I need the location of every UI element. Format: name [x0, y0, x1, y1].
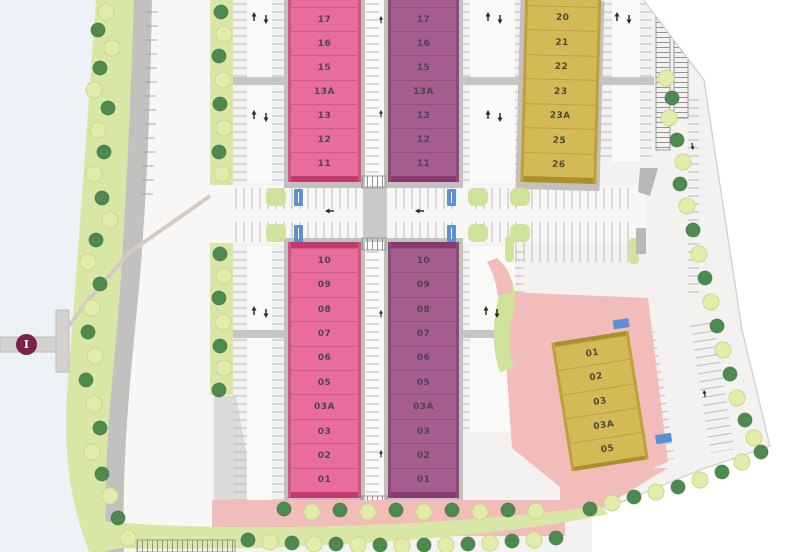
- unit-row[interactable]: 08: [291, 297, 358, 321]
- unit-row[interactable]: 13A: [391, 80, 456, 104]
- unit-row[interactable]: 18: [291, 0, 358, 7]
- unit-row[interactable]: 15: [391, 55, 456, 79]
- unit-row[interactable]: 09: [291, 272, 358, 296]
- unit-row[interactable]: 01: [291, 468, 358, 492]
- unit-row[interactable]: 13: [391, 104, 456, 128]
- unit-row[interactable]: 10: [391, 248, 456, 272]
- unit-row[interactable]: 13: [291, 104, 358, 128]
- building-edge: [391, 492, 456, 498]
- unit-row[interactable]: 05: [391, 370, 456, 394]
- unit-row[interactable]: 05: [291, 370, 358, 394]
- unit-row[interactable]: 03: [391, 419, 456, 443]
- stair-block: [362, 176, 386, 188]
- unit-row[interactable]: 01: [391, 468, 456, 492]
- unit-row[interactable]: 10: [291, 248, 358, 272]
- unit-row[interactable]: 17: [391, 7, 456, 31]
- unit-row[interactable]: 12: [291, 128, 358, 152]
- building-block-north-east: 19 20 21 22 23 23A 25 26: [520, 0, 601, 184]
- building-edge: [291, 492, 358, 498]
- unit-row[interactable]: 02: [291, 443, 358, 467]
- unit-row[interactable]: 21: [527, 29, 598, 55]
- building-block-north-mid: 18 17 16 15 13A 13 12 11: [388, 0, 459, 182]
- unit-row[interactable]: 15: [291, 55, 358, 79]
- building-block-south-mid: 10 09 08 07 06 05 03A 03 02 01: [388, 242, 459, 498]
- unit-row[interactable]: 11: [391, 152, 456, 176]
- unit-row[interactable]: 23: [525, 78, 596, 104]
- unit-row[interactable]: 12: [391, 128, 456, 152]
- unit-row[interactable]: 26: [524, 152, 595, 178]
- building-block-north-west: 18 17 16 15 13A 13 12 11: [288, 0, 361, 182]
- unit-row[interactable]: 13A: [291, 80, 358, 104]
- unit-row[interactable]: 20: [527, 5, 598, 31]
- unit-row[interactable]: 06: [391, 346, 456, 370]
- unit-row[interactable]: 08: [391, 297, 456, 321]
- unit-row[interactable]: 18: [391, 0, 456, 7]
- unit-row[interactable]: 17: [291, 7, 358, 31]
- unit-row[interactable]: 07: [391, 321, 456, 345]
- unit-row[interactable]: 03: [291, 419, 358, 443]
- unit-row[interactable]: 07: [291, 321, 358, 345]
- unit-row[interactable]: 25: [524, 127, 595, 153]
- unit-row[interactable]: 22: [526, 54, 597, 80]
- building-block-south-west: 10 09 08 07 06 05 03A 03 02 01: [288, 242, 361, 498]
- unit-row[interactable]: 16: [391, 31, 456, 55]
- unit-row[interactable]: 16: [291, 31, 358, 55]
- unit-row[interactable]: 02: [391, 443, 456, 467]
- unit-row[interactable]: 03A: [391, 394, 456, 418]
- unit-row[interactable]: 06: [291, 346, 358, 370]
- south-crosswalk: [137, 540, 235, 552]
- stair-block: [362, 238, 386, 250]
- unit-row[interactable]: 11: [291, 152, 358, 176]
- unit-row[interactable]: 09: [391, 272, 456, 296]
- unit-row[interactable]: 23A: [525, 103, 596, 129]
- unit-row[interactable]: 03A: [291, 394, 358, 418]
- site-plan: 18 17 16 15 13A 13 12 11 18 17 16 15 13A…: [0, 0, 800, 552]
- site-entrance-marker[interactable]: I: [16, 334, 37, 355]
- building-edge: [391, 176, 456, 182]
- building-edge: [291, 176, 358, 182]
